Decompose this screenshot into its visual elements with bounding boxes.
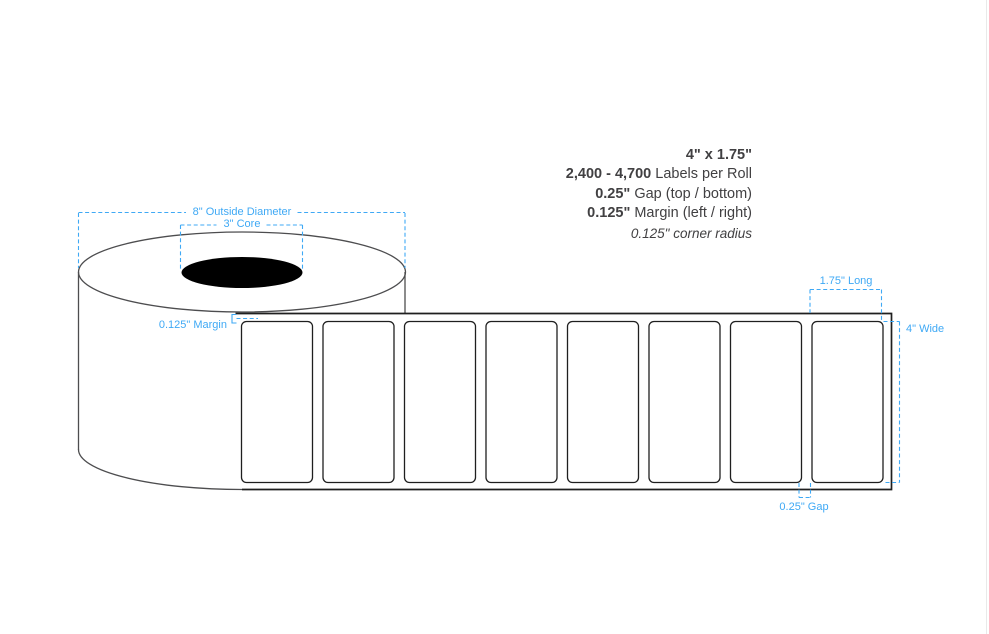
spec-margin-label: Margin (left / right) xyxy=(630,205,752,221)
spec-count-label: Labels per Roll xyxy=(651,166,752,182)
label-cell xyxy=(323,322,394,483)
spec-count-line: 2,400 - 4,700 Labels per Roll xyxy=(566,165,752,184)
spec-size-line: 4" x 1.75" xyxy=(566,146,752,165)
label-cell xyxy=(731,322,802,483)
label-cells xyxy=(242,322,884,483)
label-cell xyxy=(405,322,476,483)
spec-count-value: 2,400 - 4,700 xyxy=(566,166,651,182)
label-cell xyxy=(649,322,720,483)
label-cell xyxy=(242,322,313,483)
spec-size-value: 4" x 1.75" xyxy=(686,147,752,163)
spec-margin-line: 0.125" Margin (left / right) xyxy=(566,204,752,223)
label-roll-diagram-page: 4" x 1.75" 2,400 - 4,700 Labels per Roll… xyxy=(0,0,989,634)
label-cell xyxy=(486,322,557,483)
wide-label: 4" Wide xyxy=(906,323,944,335)
outside-diameter-label: 8" Outside Diameter xyxy=(142,206,342,218)
label-cell xyxy=(568,322,639,483)
spec-gap-line: 0.25" Gap (top / bottom) xyxy=(566,185,752,204)
roll-core-hole xyxy=(182,257,303,288)
spec-margin-value: 0.125" xyxy=(587,205,630,221)
roll-bottom-arc xyxy=(79,450,243,490)
long-dimension xyxy=(810,290,882,321)
spec-gap-value: 0.25" xyxy=(595,186,630,202)
long-label: 1.75" Long xyxy=(786,275,906,287)
label-roll-diagram xyxy=(0,0,989,634)
label-cell xyxy=(812,322,883,483)
core-label: 3" Core xyxy=(162,218,322,230)
spec-corner-radius-line: 0.125" corner radius xyxy=(566,224,752,243)
gap-label: 0.25" Gap xyxy=(744,501,864,513)
spec-gap-label: Gap (top / bottom) xyxy=(630,186,752,202)
margin-label: 0.125" Margin xyxy=(159,319,227,331)
spec-panel: 4" x 1.75" 2,400 - 4,700 Labels per Roll… xyxy=(566,146,752,243)
